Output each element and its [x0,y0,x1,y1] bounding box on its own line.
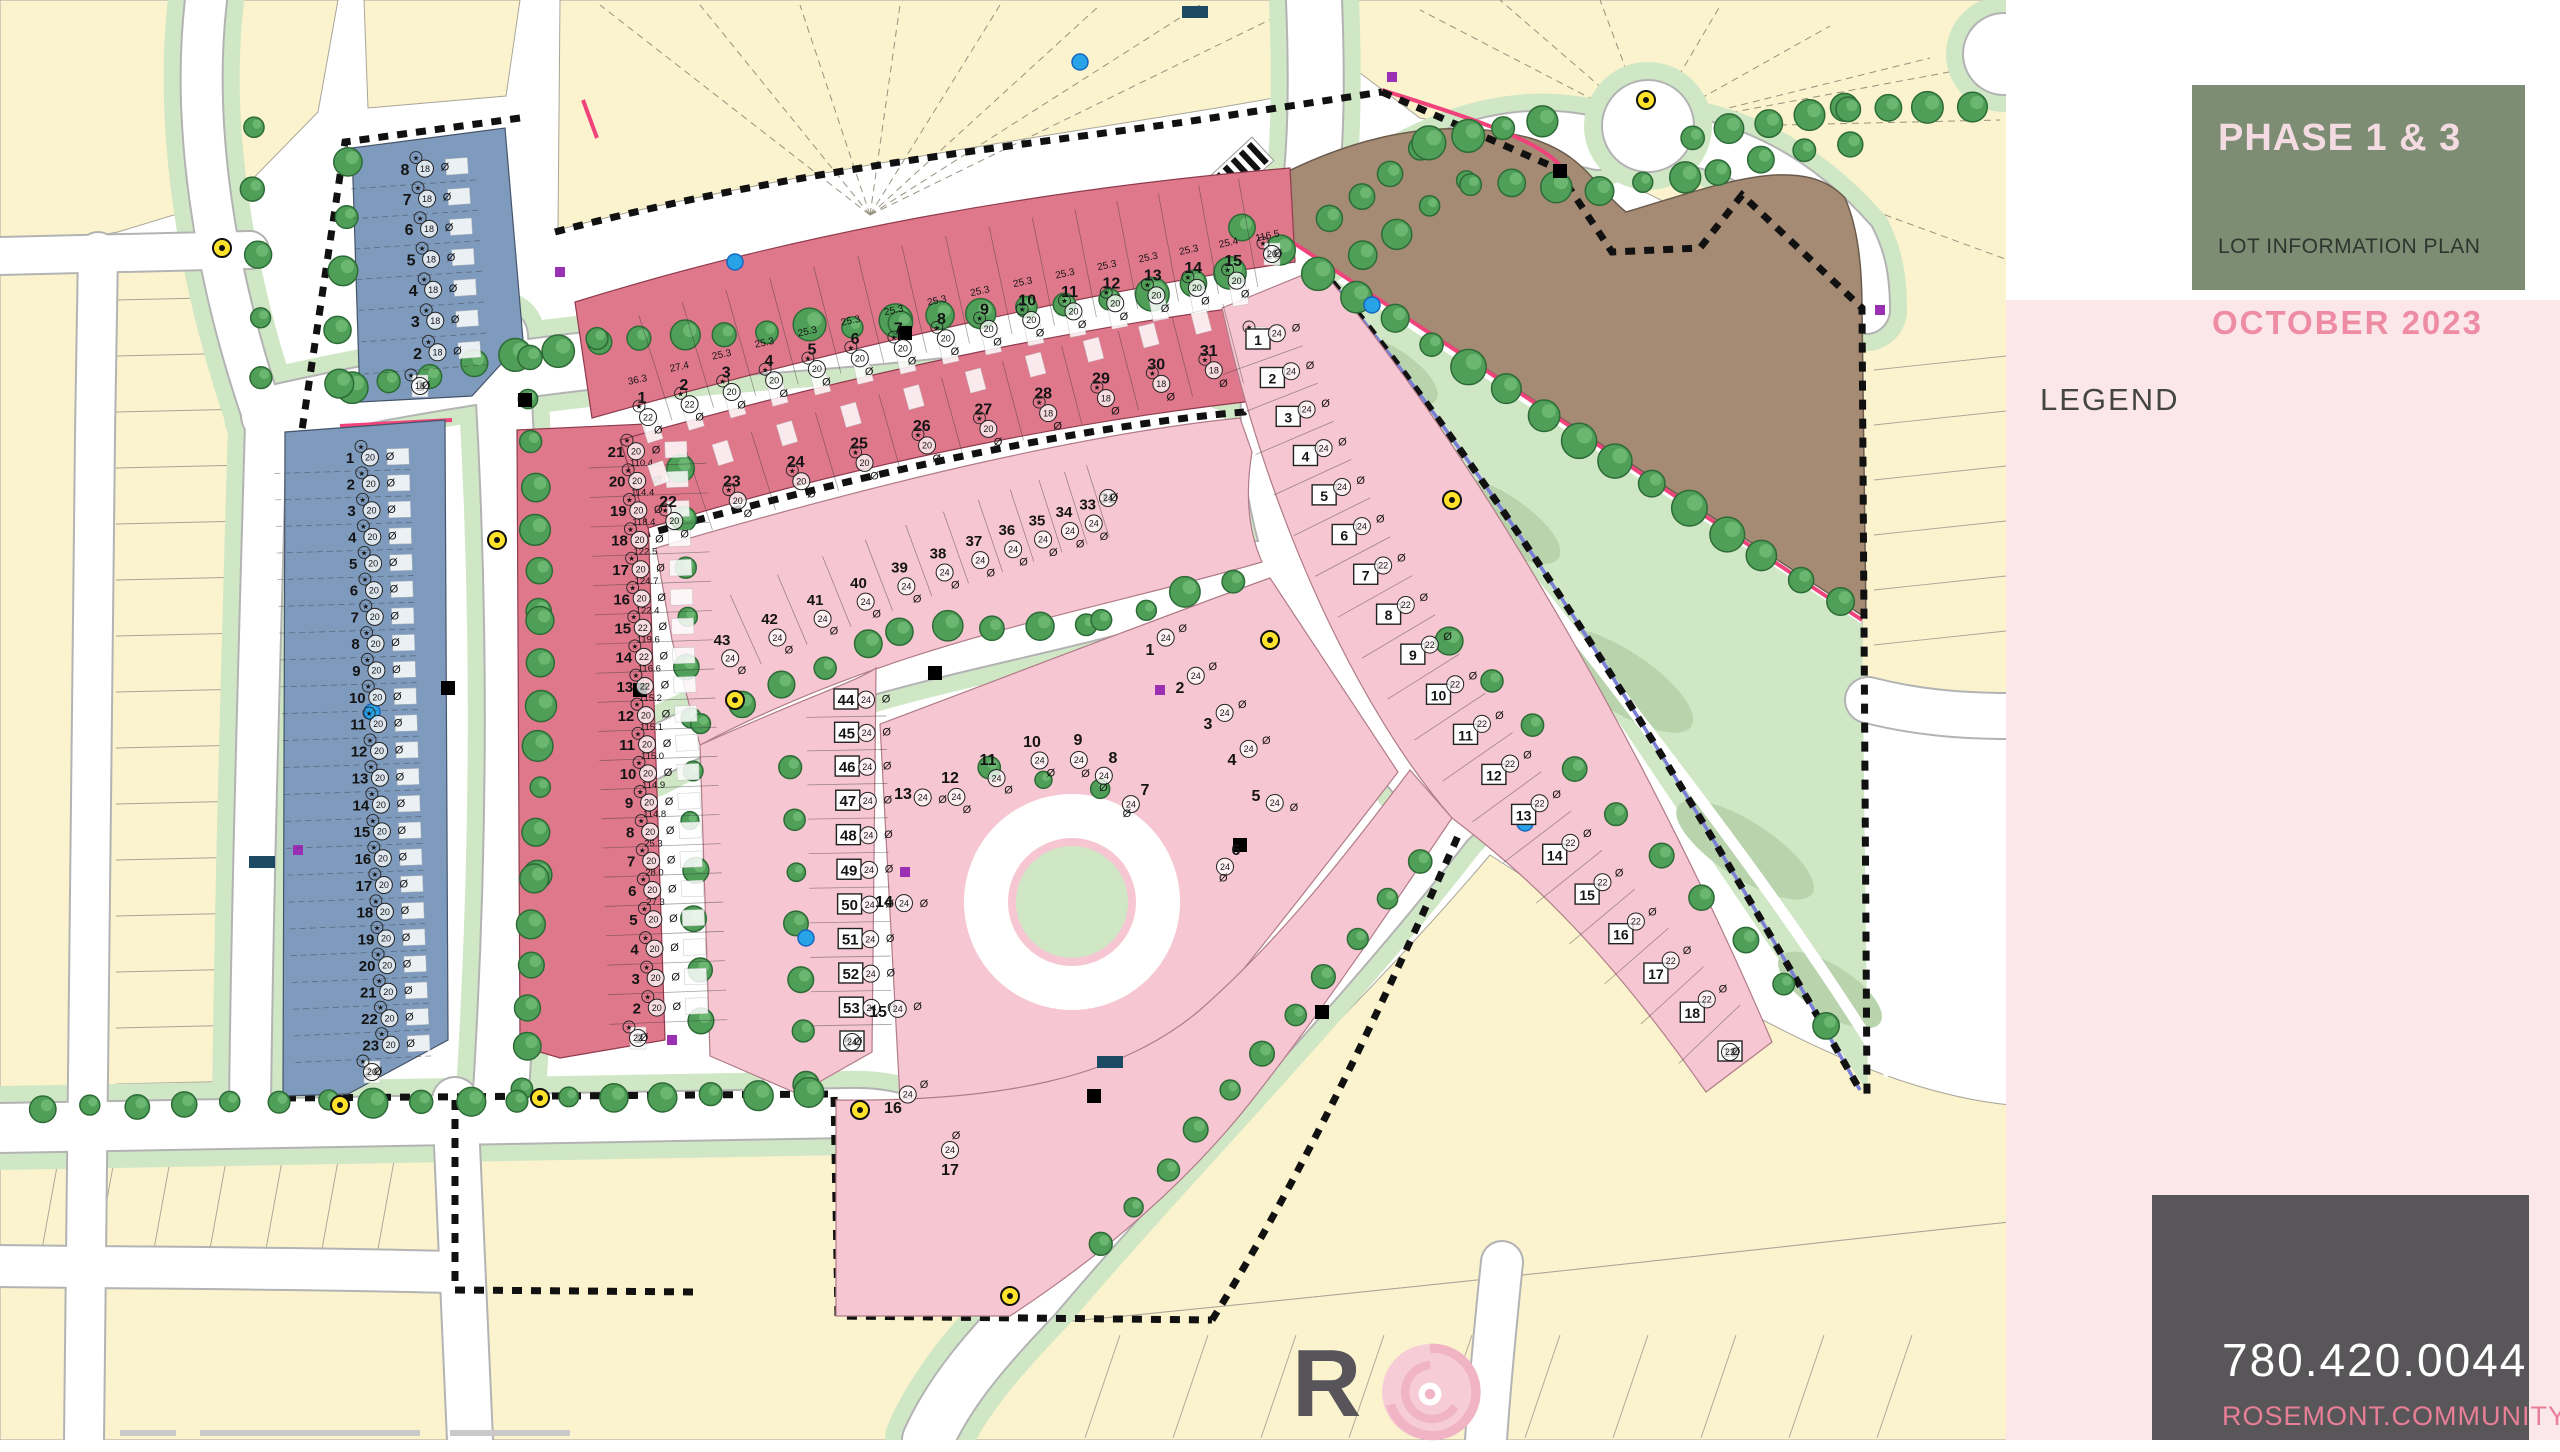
house-width: 20 [380,907,390,917]
roof-leader-mark: ★ [368,763,375,772]
roof-leader-mark: ★ [630,613,637,622]
net-zero-mark: Ø [1161,303,1170,315]
roof-leader-mark: ★ [358,469,365,478]
lot-number: 14 [1547,847,1563,863]
roof-leader-mark: ★ [628,554,635,563]
pedestal-icon [1875,305,1885,315]
roof-leader-mark: ★ [1144,280,1151,289]
pedestal-icon [555,267,565,277]
net-zero-mark: Ø [1615,867,1624,879]
transformer-icon [518,393,532,407]
house-width: 22 [1425,640,1435,650]
house-width: 22 [1401,600,1411,610]
net-zero-mark: Ø [1495,710,1504,722]
house-width: 22 [639,652,649,662]
house-width: 22 [638,623,648,633]
house-width: 22 [685,399,695,409]
lot-number: 18 [611,533,628,550]
house-width: 20 [374,746,384,756]
lot-number: 36 [999,522,1016,539]
house-width: 18 [420,164,430,174]
roof-leader-mark: ★ [423,306,430,315]
mailbox-icon [249,856,275,868]
net-zero-mark: Ø [445,222,454,234]
roof-leader-mark: ★ [367,736,374,745]
house-width: 20 [377,827,387,837]
net-zero-mark: Ø [1376,514,1385,526]
roof-leader-mark: ★ [719,377,726,386]
lot-number: 12 [941,770,959,787]
roof-leader-mark: ★ [636,402,643,411]
logo-letter: R [1292,1332,1361,1436]
roof-leader-mark: ★ [852,448,859,457]
roof-leader-mark: ★ [1149,369,1156,378]
net-zero-mark: Ø [399,852,408,864]
roof-leader-mark: ★ [1224,266,1231,275]
net-zero-mark: Ø [887,967,896,979]
house-width: 20 [637,594,647,604]
net-zero-mark: Ø [1047,767,1056,779]
net-zero-mark: Ø [830,626,839,638]
net-zero-mark: Ø [1552,789,1561,801]
lot-number: 46 [839,759,856,776]
net-zero-mark: Ø [374,1066,383,1078]
roof-leader-mark: ★ [639,846,646,855]
lot-number: 23 [362,1038,379,1055]
lot-number: 9 [352,663,360,680]
transformer-icon [928,666,942,680]
lot-number: 6 [628,883,636,900]
house-width: 20 [376,800,386,810]
net-zero-mark: Ø [441,162,450,174]
house-width: 24 [901,582,911,592]
net-zero-mark: Ø [1683,945,1692,957]
roof-leader-mark: ★ [976,314,983,323]
house-width: 18 [428,285,438,295]
net-zero-mark: Ø [395,744,404,756]
lot-number: 8 [1385,607,1393,623]
house-width: 24 [1286,366,1296,376]
net-zero-mark: Ø [822,377,831,389]
lot-number: 17 [941,1162,959,1179]
net-zero-mark: Ø [396,771,405,783]
lot-number: 5 [407,252,416,269]
net-zero-mark: Ø [451,314,460,326]
net-zero-mark: Ø [388,530,397,542]
net-zero-mark: Ø [398,825,407,837]
house-width: 24 [1191,671,1201,681]
plan-subtitle: LOT INFORMATION PLAN [2218,235,2480,259]
net-zero-mark: Ø [882,693,891,705]
lot-number: 8 [1109,750,1118,767]
net-zero-mark: Ø [1100,531,1109,543]
house-width: 20 [371,639,381,649]
net-zero-mark: Ø [1178,623,1187,635]
roof-leader-mark: ★ [360,1057,367,1066]
house-width: 18 [430,316,440,326]
house-width: 24 [866,969,876,979]
house-width: 20 [633,506,643,516]
net-zero-mark: Ø [1209,661,1218,673]
lot-number: 45 [838,725,855,742]
lot-number: 3 [1204,716,1213,733]
house-width: 20 [634,535,644,545]
house-width: 24 [899,898,909,908]
lot-number: 20 [609,474,626,491]
net-zero-mark: Ø [1099,782,1108,794]
net-zero-mark: Ø [656,563,665,575]
house-width: 20 [669,516,679,526]
lot-number: 9 [625,795,633,812]
net-zero-mark: Ø [400,878,409,890]
house-width: 20 [648,914,658,924]
net-zero-mark: Ø [664,767,673,779]
roof-leader-mark: ★ [364,655,371,664]
net-zero-mark: Ø [865,366,874,378]
net-zero-mark: Ø [1201,296,1210,308]
house-width: 24 [1272,328,1282,338]
house-width: 20 [370,612,380,622]
lot-number: 2 [633,1000,641,1017]
roof-leader-mark: ★ [1061,296,1068,305]
net-zero-mark: Ø [913,1001,922,1013]
house-width: 20 [642,739,652,749]
roof-leader-mark: ★ [626,495,633,504]
house-width: 24 [1161,633,1171,643]
roof-leader-mark: ★ [369,790,376,799]
lot-number: 16 [355,851,372,868]
lot-number: 3 [1284,409,1292,425]
net-zero-mark: Ø [1469,671,1478,683]
lot-number: 10 [620,766,637,783]
roof-leader-mark: ★ [641,904,648,913]
roof-leader-mark: ★ [642,934,649,943]
net-zero-mark: Ø [1583,828,1592,840]
net-zero-mark: Ø [663,738,672,750]
rosemont-logo: R [1292,1332,1516,1452]
house-width: 22 [1702,995,1712,1005]
roof-leader-mark: ★ [627,525,634,534]
lot-number: 11 [1458,727,1473,743]
net-zero-mark: Ø [951,580,960,592]
lot-number: 15 [354,824,371,841]
lot-number: 7 [403,192,412,209]
net-zero-mark: Ø [660,650,669,662]
rose-icon [1378,1340,1482,1444]
house-width: 20 [631,446,641,456]
net-zero-mark: Ø [390,610,399,622]
plan-date: OCTOBER 2023 [2212,304,2483,342]
house-width: 20 [644,798,654,808]
roof-leader-mark: ★ [635,729,642,738]
lot-number: 9 [1074,732,1083,749]
net-zero-mark: Ø [640,1032,649,1044]
house-width: 20 [384,1013,394,1023]
house-width: 22 [640,681,650,691]
net-zero-mark: Ø [453,345,462,357]
house-width: 18 [422,194,432,204]
roof-leader-mark: ★ [624,436,631,445]
website-link[interactable]: ROSEMONT.COMMUNITY [2222,1401,2560,1432]
net-zero-mark: Ø [1219,378,1228,390]
net-zero-mark: Ø [652,445,661,457]
lot-number: 4 [348,529,357,546]
lot-number: 9 [1409,647,1417,663]
roof-leader-mark: ★ [413,154,420,163]
contact-box: 780.420.0044 ROSEMONT.COMMUNITY [2152,1195,2529,1440]
net-zero-mark: Ø [952,1130,961,1142]
lot-number: 44 [838,692,855,709]
lot-number: 2 [347,476,355,493]
roof-leader-mark: ★ [360,522,367,531]
house-width: 24 [1270,798,1280,808]
roof-leader-mark: ★ [725,486,732,495]
net-zero-mark: Ø [1004,785,1013,797]
mailbox-icon [1097,1056,1123,1068]
house-width: 24 [1038,535,1048,545]
house-width: 20 [649,944,659,954]
lot-number: 4 [409,283,418,300]
house-width: 24 [862,728,872,738]
net-zero-mark: Ø [680,528,689,540]
roof-leader-mark: ★ [633,671,640,680]
lot-number: 11 [619,737,635,754]
title-box: PHASE 1 & 3 LOT INFORMATION PLAN [2192,85,2525,290]
net-zero-mark: Ø [872,609,881,621]
house-width: 24 [861,695,871,705]
net-zero-mark: Ø [920,898,929,910]
lot-number: 39 [891,560,908,577]
roof-leader-mark: ★ [425,337,432,346]
net-zero-mark: Ø [397,798,406,810]
roof-leader-mark: ★ [634,700,641,709]
roof-leader-mark: ★ [371,870,378,879]
net-zero-mark: Ø [1078,319,1087,331]
net-zero-mark: Ø [662,709,671,721]
roof-leader-mark: ★ [408,371,415,380]
lot-frontage: 25.3 [644,838,663,849]
lot-number: 8 [626,824,634,841]
roof-leader-mark: ★ [363,629,370,638]
net-zero-mark: Ø [655,533,664,545]
lot-number: 13 [617,679,634,696]
lot-number: 16 [1613,927,1629,943]
net-zero-mark: Ø [404,985,413,997]
house-width: 20 [383,987,393,997]
house-width: 20 [855,354,865,364]
lot-number: 33 [1079,496,1096,513]
fire-hydrant-icon [798,930,814,946]
net-zero-mark: Ø [392,664,401,676]
lot-number: 17 [1648,966,1664,982]
roof-leader-mark: ★ [419,244,426,253]
lot-number: 12 [618,708,635,725]
roof-leader-mark: ★ [362,602,369,611]
lot-number: 1 [1254,332,1262,348]
house-width: 22 [643,412,653,422]
lot-number: 48 [840,828,857,845]
net-zero-mark: Ø [920,1079,929,1091]
roof-leader-mark: ★ [625,466,632,475]
net-zero-mark: Ø [1120,311,1129,323]
roof-leader-mark: ★ [376,977,383,986]
roof-leader-mark: ★ [417,214,424,223]
house-width: 20 [983,424,993,434]
net-zero-mark: Ø [1290,802,1299,814]
house-width: 20 [647,885,657,895]
house-width: 24 [1220,708,1230,718]
house-width: 24 [951,792,961,802]
roof-leader-mark: ★ [370,843,377,852]
lot-number: 14 [615,650,632,667]
house-width: 22 [1477,719,1487,729]
house-width: 24 [863,831,873,841]
phone-number: 780.420.0044 [2222,1333,2527,1387]
lot-number: 7 [627,854,635,871]
house-width: 18 [432,348,442,358]
net-zero-mark: Ø [1167,391,1176,403]
cutoff-disclaimer [120,1430,176,1436]
cutoff-disclaimer [450,1430,570,1436]
lot-number: 22 [361,1011,378,1028]
lot-number: 21 [360,985,377,1002]
map-canvas: 818Ø★718Ø★618Ø★518Ø★418Ø★318Ø★218Ø★118Ø★… [0,0,2010,1440]
lot-number: 5 [629,912,637,929]
net-zero-mark: Ø [658,621,667,633]
net-zero-mark: Ø [393,691,402,703]
info-panel: PHASE 1 & 3 LOT INFORMATION PLAN OCTOBER… [2006,0,2560,1440]
lot-number: 12 [351,744,368,761]
house-width: 24 [1099,771,1109,781]
net-zero-mark: Ø [447,252,456,264]
lot-number: 20 [359,958,376,975]
net-zero-mark: Ø [1648,906,1657,918]
lot-frontage: 28.0 [645,868,664,879]
roof-leader-mark: ★ [890,333,897,342]
net-zero-mark: Ø [994,436,1003,448]
lot-number: 3 [347,503,355,520]
house-width: 24 [865,900,875,910]
pedestal-icon [1387,72,1397,82]
house-width: 22 [1565,838,1575,848]
house-width: 20 [796,476,806,486]
house-width: 20 [727,387,737,397]
pedestal-icon [900,867,910,877]
house-width: 20 [382,960,392,970]
net-zero-mark: Ø [386,451,395,463]
lot-number: 10 [349,690,366,707]
house-width: 20 [651,973,661,983]
house-width: 24 [940,568,950,578]
lot-number: 4 [1302,448,1310,464]
roof-leader-mark: ★ [643,963,650,972]
lot-number: 14 [875,894,893,911]
net-zero-mark: Ø [1321,398,1330,410]
fire-hydrant-icon [727,254,743,270]
lot-number: 15 [1579,887,1595,903]
net-zero-mark: Ø [666,825,675,837]
roof-leader-mark: ★ [1185,273,1192,282]
net-zero-mark: Ø [1523,749,1532,761]
house-width: 20 [371,666,381,676]
transformer-icon [441,681,455,695]
house-width: 20 [652,1003,662,1013]
lot-number: 18 [357,905,374,922]
lot-number: 13 [1516,807,1532,823]
roof-leader-mark: ★ [644,993,651,1002]
net-zero-mark: Ø [1123,808,1132,820]
lot-number: 34 [1056,504,1073,521]
house-width: 24 [864,865,874,875]
house-width: 22 [1505,759,1515,769]
lot-number: 21 [608,444,625,461]
fire-hydrant-icon [1364,297,1380,313]
roof-leader-mark: ★ [662,506,669,515]
net-zero-mark: Ø [1081,768,1090,780]
lot-number: 1 [346,450,354,467]
house-width: 20 [632,476,642,486]
house-width: 24 [1089,519,1099,529]
net-zero-mark: Ø [390,584,399,596]
house-width: 20 [769,375,779,385]
lot-number: 4 [1228,752,1237,769]
net-zero-mark: Ø [386,477,395,489]
roof-leader-mark: ★ [789,466,796,475]
net-zero-mark: Ø [402,932,411,944]
lot-number: 6 [1232,842,1241,859]
house-width: 24 [945,1145,955,1155]
roof-leader-mark: ★ [1094,383,1101,392]
house-width: 24 [1357,521,1367,531]
roof-leader-mark: ★ [366,709,373,718]
lot-number: 43 [714,632,731,649]
house-width: 20 [636,564,646,574]
lot-number: 52 [842,966,859,983]
lot-number: 16 [613,591,630,608]
lot-number: 17 [612,562,629,579]
house-width: 24 [1074,755,1084,765]
lot-number: 11 [980,752,997,769]
net-zero-mark: Ø [884,829,893,841]
house-width: 20 [941,333,951,343]
house-width: 24 [861,597,871,607]
lot-number: 47 [839,793,856,810]
house-width: 18 [424,224,434,234]
net-zero-mark: Ø [737,399,746,411]
transformer-icon [1553,164,1567,178]
lot-number: 8 [351,636,359,653]
roof-leader-mark: ★ [677,389,684,398]
roof-leader-mark: ★ [1103,288,1110,297]
net-zero-mark: Ø [1719,984,1728,996]
lot-number: 6 [350,583,358,600]
house-width: 18 [1101,393,1111,403]
roof-leader-mark: ★ [358,442,365,451]
house-width: 20 [898,343,908,353]
net-zero-mark: Ø [443,192,452,204]
fire-hydrant-icon [1072,54,1088,70]
net-zero-mark: Ø [886,933,895,945]
net-zero-mark: Ø [870,470,879,482]
house-width: 20 [367,505,377,515]
roof-leader-mark: ★ [805,354,812,363]
legend-title: LEGEND [2040,382,2179,418]
house-width: 24 [1244,744,1254,754]
house-width: 20 [365,453,375,463]
lot-number: 10 [1023,734,1041,751]
roof-leader-mark: ★ [375,950,382,959]
house-width: 18 [426,254,436,264]
